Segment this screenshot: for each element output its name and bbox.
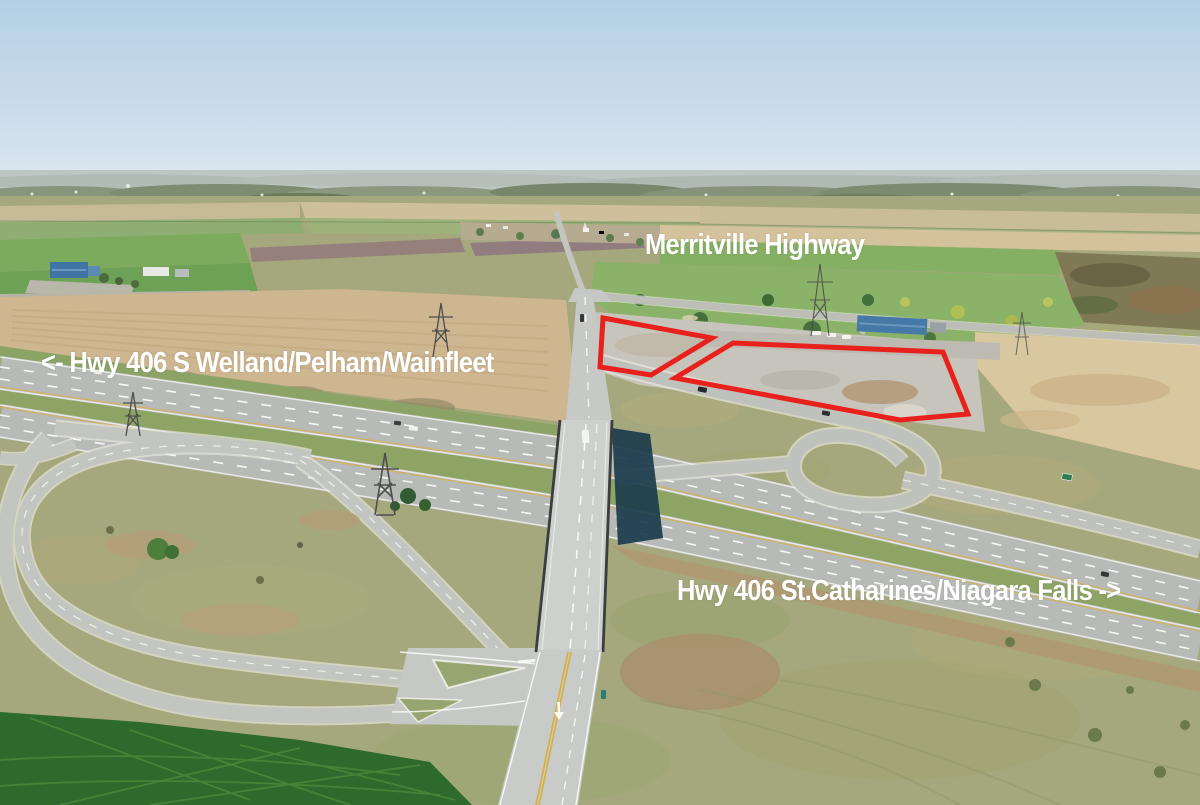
car xyxy=(580,314,584,322)
label-hwy406-south: <- Hwy 406 S Welland/Pelham/Wainfleet xyxy=(41,349,494,378)
aerial-listing-photo: Merritville Highway <- Hwy 406 S Welland… xyxy=(0,0,1200,805)
dirt-patch-center xyxy=(620,634,780,710)
car xyxy=(582,430,590,443)
aerial-scene xyxy=(0,0,1200,805)
label-merrittville-highway: Merritville Highway xyxy=(645,231,864,260)
label-hwy406-north: Hwy 406 St.Catharines/Niagara Falls -> xyxy=(677,577,1120,606)
parked-car xyxy=(601,690,606,699)
